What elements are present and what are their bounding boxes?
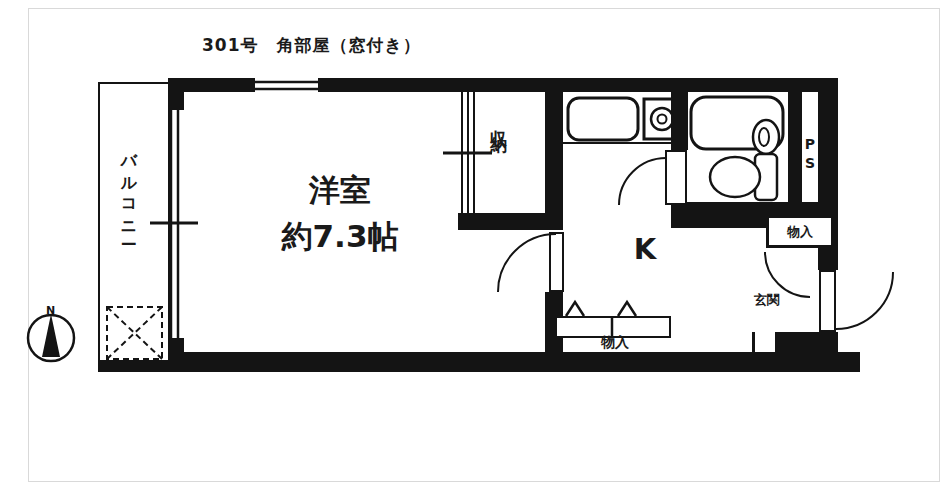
bifold-door-icon: [566, 302, 636, 338]
closet-sliding-door-icon: [443, 92, 492, 213]
door-arcs: [498, 158, 893, 329]
kitchen-label: K: [618, 232, 672, 266]
balcony-label: バルコニー: [118, 142, 139, 322]
compass-icon: N: [28, 304, 74, 361]
entrance-door-arc: [836, 272, 893, 329]
room-door-arc: [498, 234, 556, 292]
pipe-space-label: PS: [801, 136, 818, 174]
toilet-icon: [710, 154, 777, 200]
closet-label: 収納: [488, 116, 511, 206]
bath-door-arc: [619, 158, 666, 205]
balcony-window-icon: [150, 108, 198, 338]
room-size-label: 約7.3帖: [232, 216, 448, 258]
compass-north-label: N: [46, 304, 55, 317]
plan-linework: N: [0, 0, 946, 489]
floor-plan: 301号 角部屋（窓付き） 物入: [0, 0, 946, 489]
entrance-label: 玄関: [754, 291, 806, 309]
window-top-icon: [255, 82, 318, 89]
room-name-label: 洋室: [250, 170, 430, 212]
kitchen-sink-icon: [568, 98, 638, 140]
washbasin-icon: [753, 120, 779, 154]
storage-bottom-label: 物入: [572, 334, 658, 352]
stove-icon: [644, 99, 680, 139]
